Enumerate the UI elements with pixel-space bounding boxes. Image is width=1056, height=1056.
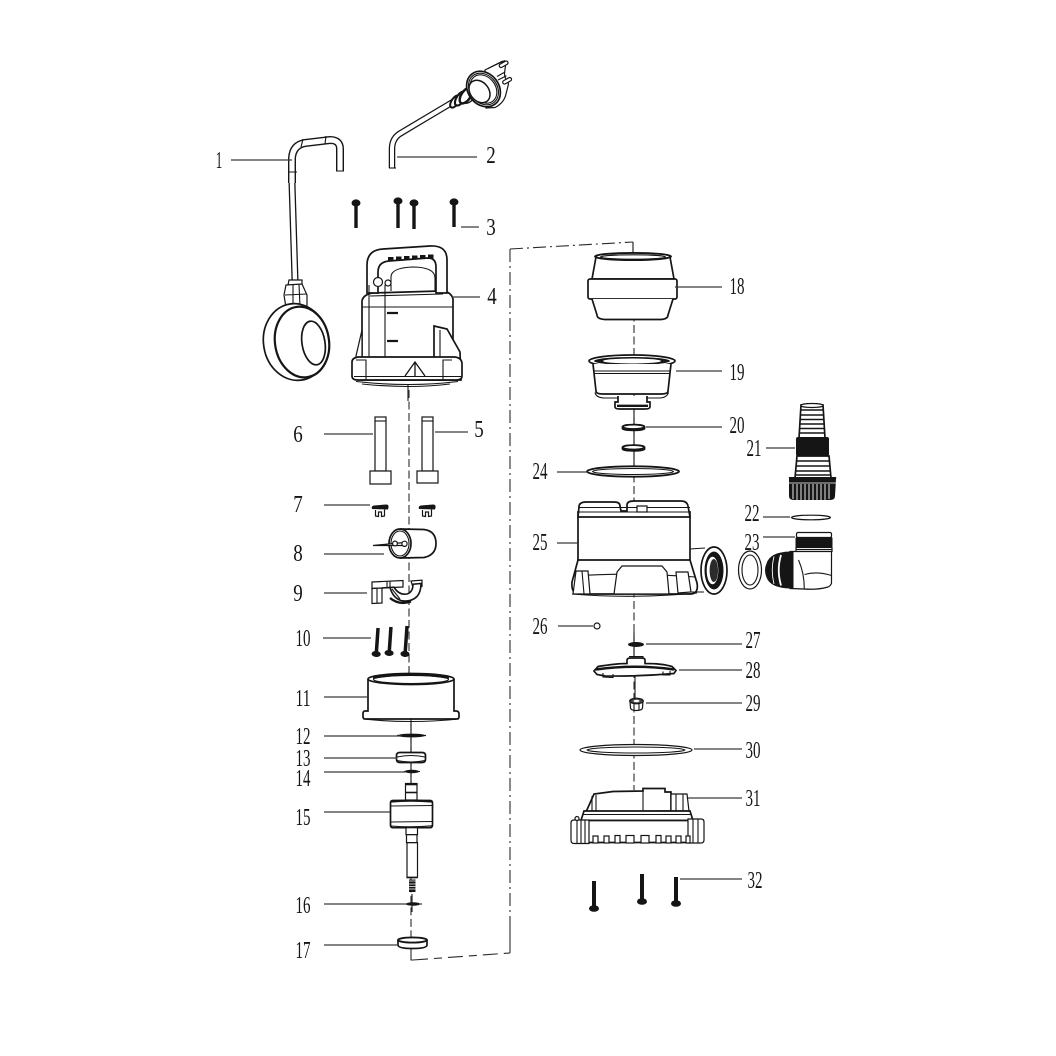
svg-text:23: 23	[745, 530, 760, 556]
svg-text:30: 30	[746, 738, 761, 764]
svg-text:29: 29	[746, 691, 761, 717]
svg-text:21: 21	[747, 436, 762, 462]
svg-text:26: 26	[533, 614, 548, 640]
svg-text:20: 20	[730, 413, 745, 439]
svg-text:8: 8	[293, 541, 303, 567]
svg-text:4: 4	[487, 284, 497, 310]
svg-text:27: 27	[746, 628, 761, 654]
svg-text:6: 6	[293, 422, 303, 448]
svg-text:15: 15	[296, 805, 311, 831]
svg-text:31: 31	[746, 786, 761, 812]
svg-text:25: 25	[533, 530, 548, 556]
svg-text:3: 3	[486, 215, 496, 241]
svg-text:9: 9	[293, 581, 303, 607]
svg-text:14: 14	[296, 766, 311, 792]
svg-text:2: 2	[486, 143, 496, 169]
svg-text:22: 22	[745, 501, 760, 527]
svg-text:19: 19	[730, 360, 745, 386]
svg-text:5: 5	[474, 417, 484, 443]
svg-text:32: 32	[748, 868, 763, 894]
svg-text:24: 24	[533, 459, 548, 485]
svg-text:16: 16	[296, 893, 311, 919]
svg-text:17: 17	[296, 938, 311, 964]
svg-text:18: 18	[730, 274, 745, 300]
svg-text:1: 1	[216, 148, 223, 174]
svg-text:11: 11	[296, 686, 311, 712]
svg-text:28: 28	[746, 658, 761, 684]
svg-text:7: 7	[293, 492, 303, 518]
svg-text:10: 10	[296, 626, 311, 652]
